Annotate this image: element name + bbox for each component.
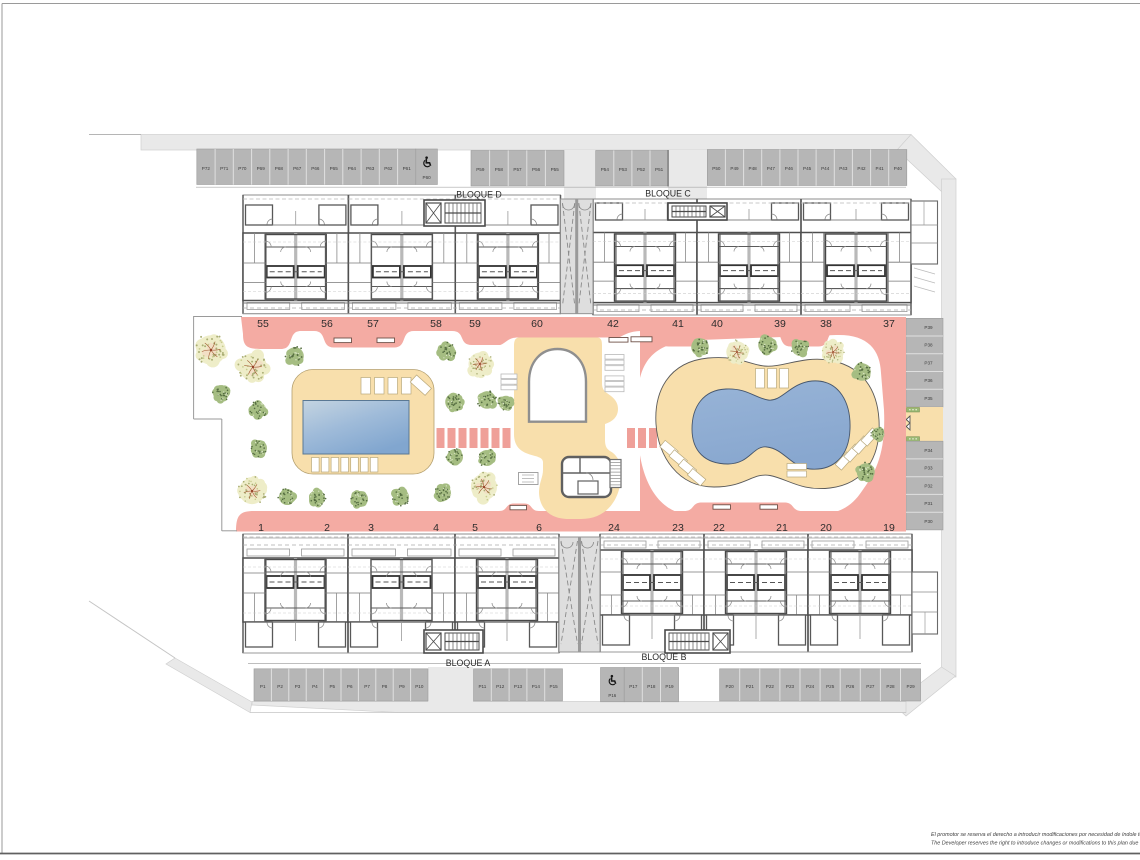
svg-text:El promotor se reserva el dere: El promotor se reserva el derecho a intr…: [931, 832, 1140, 838]
svg-text:P69: P69: [257, 166, 266, 171]
svg-text:BLOQUE B: BLOQUE B: [642, 652, 687, 662]
svg-text:P44: P44: [821, 166, 830, 171]
svg-text:6: 6: [536, 522, 542, 534]
svg-text:P17: P17: [629, 684, 638, 689]
svg-text:24: 24: [608, 522, 620, 534]
svg-text:4: 4: [433, 522, 439, 534]
svg-text:57: 57: [367, 318, 379, 330]
svg-text:55: 55: [257, 318, 269, 330]
svg-text:P64: P64: [348, 166, 357, 171]
svg-text:P20: P20: [726, 684, 735, 689]
svg-text:P21: P21: [746, 684, 755, 689]
svg-text:P60: P60: [423, 175, 432, 180]
svg-text:P51: P51: [655, 167, 664, 172]
svg-text:P33: P33: [924, 466, 933, 471]
svg-text:P24: P24: [806, 684, 815, 689]
svg-text:3: 3: [368, 522, 374, 534]
svg-text:P63: P63: [366, 166, 375, 171]
svg-text:P58: P58: [495, 167, 504, 172]
svg-text:P57: P57: [513, 167, 522, 172]
svg-text:21: 21: [776, 522, 788, 534]
svg-text:P11: P11: [478, 684, 486, 689]
svg-text:P36: P36: [924, 378, 933, 383]
svg-text:20: 20: [820, 522, 832, 534]
svg-text:2: 2: [324, 522, 330, 534]
svg-text:P14: P14: [532, 684, 541, 689]
svg-text:42: 42: [607, 318, 619, 330]
svg-text:P48: P48: [749, 166, 758, 171]
svg-text:P26: P26: [846, 684, 855, 689]
svg-text:P53: P53: [619, 167, 628, 172]
svg-text:P32: P32: [924, 484, 933, 489]
svg-text:P39: P39: [924, 325, 933, 330]
svg-text:56: 56: [321, 318, 333, 330]
svg-text:P31: P31: [924, 501, 933, 506]
svg-text:P40: P40: [894, 166, 903, 171]
svg-text:P23: P23: [786, 684, 795, 689]
svg-text:P47: P47: [767, 166, 776, 171]
svg-text:P27: P27: [866, 684, 875, 689]
svg-text:P65: P65: [330, 166, 339, 171]
svg-text:23: 23: [672, 522, 684, 534]
svg-text:The Developer reserves the rig: The Developer reserves the right to intr…: [931, 841, 1140, 847]
svg-text:40: 40: [711, 318, 723, 330]
svg-text:59: 59: [469, 318, 481, 330]
svg-text:P56: P56: [532, 167, 541, 172]
svg-text:P72: P72: [202, 166, 211, 171]
svg-text:P3: P3: [295, 684, 301, 689]
svg-text:P30: P30: [924, 519, 933, 524]
svg-text:P8: P8: [382, 684, 388, 689]
svg-text:P66: P66: [311, 166, 320, 171]
svg-text:P5: P5: [329, 684, 335, 689]
svg-text:P46: P46: [785, 166, 794, 171]
svg-text:P16: P16: [608, 693, 616, 698]
svg-text:P62: P62: [384, 166, 393, 171]
svg-text:BLOQUE A: BLOQUE A: [446, 658, 491, 668]
svg-text:P45: P45: [803, 166, 812, 171]
svg-text:P52: P52: [637, 167, 646, 172]
svg-text:P68: P68: [275, 166, 284, 171]
svg-text:P18: P18: [647, 684, 656, 689]
svg-text:P35: P35: [924, 396, 933, 401]
svg-text:60: 60: [531, 318, 543, 330]
svg-text:P54: P54: [601, 167, 610, 172]
svg-text:P25: P25: [826, 684, 835, 689]
svg-text:P43: P43: [839, 166, 848, 171]
svg-text:37: 37: [883, 318, 895, 330]
svg-text:P4: P4: [312, 684, 318, 689]
svg-text:P29: P29: [907, 684, 916, 689]
svg-text:P50: P50: [712, 166, 721, 171]
svg-text:41: 41: [672, 318, 684, 330]
svg-text:P22: P22: [766, 684, 775, 689]
svg-text:P9: P9: [399, 684, 405, 689]
svg-text:P37: P37: [924, 361, 933, 366]
svg-text:5: 5: [472, 522, 478, 534]
svg-text:P7: P7: [364, 684, 370, 689]
svg-text:P1: P1: [260, 684, 266, 689]
svg-text:P10: P10: [415, 684, 424, 689]
svg-text:BLOQUE D: BLOQUE D: [456, 190, 501, 200]
svg-text:P38: P38: [924, 343, 933, 348]
svg-text:BLOQUE C: BLOQUE C: [645, 189, 691, 199]
svg-text:P34: P34: [924, 448, 933, 453]
svg-text:P19: P19: [665, 684, 674, 689]
svg-text:P12: P12: [496, 684, 505, 689]
svg-text:P42: P42: [857, 166, 866, 171]
svg-text:P70: P70: [238, 166, 247, 171]
svg-text:P41: P41: [876, 166, 885, 171]
svg-text:P67: P67: [293, 166, 302, 171]
svg-text:1: 1: [258, 522, 264, 534]
svg-text:P71: P71: [220, 166, 229, 171]
svg-text:P61: P61: [403, 166, 412, 171]
svg-text:58: 58: [430, 318, 442, 330]
svg-text:P13: P13: [514, 684, 523, 689]
svg-text:P49: P49: [730, 166, 739, 171]
svg-text:P59: P59: [476, 167, 485, 172]
svg-text:P28: P28: [886, 684, 895, 689]
svg-text:P55: P55: [551, 167, 560, 172]
svg-text:19: 19: [883, 522, 895, 534]
svg-text:P6: P6: [347, 684, 353, 689]
svg-text:22: 22: [713, 522, 725, 534]
svg-text:38: 38: [820, 318, 832, 330]
svg-text:P15: P15: [550, 684, 559, 689]
svg-text:P2: P2: [277, 684, 283, 689]
svg-text:39: 39: [774, 318, 786, 330]
